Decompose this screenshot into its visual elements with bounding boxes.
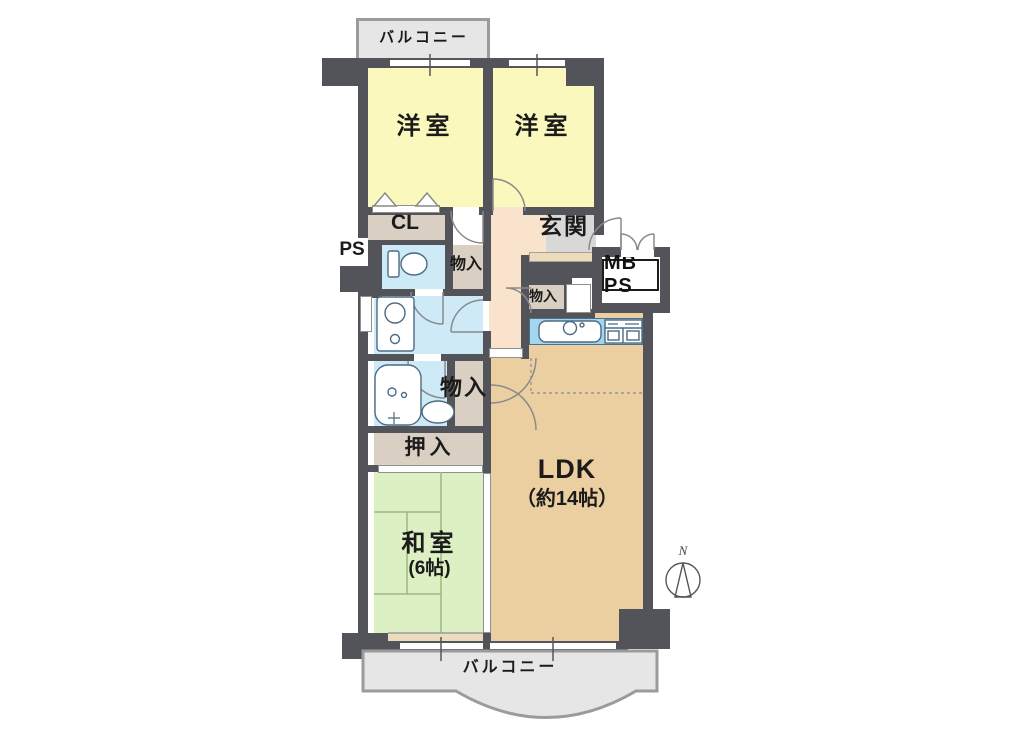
wall-segment bbox=[479, 207, 493, 215]
wall-segment bbox=[366, 426, 485, 433]
entrance-step bbox=[529, 252, 595, 262]
storage-lower-label: 物入 bbox=[432, 376, 496, 400]
storage-top-label: 物入 bbox=[444, 256, 488, 274]
meter-box: MB PS bbox=[602, 259, 659, 291]
storage-mid-label: 物入 bbox=[519, 289, 567, 304]
wall-segment bbox=[616, 641, 628, 651]
engawa-strip bbox=[388, 633, 483, 641]
wall-segment bbox=[340, 266, 366, 292]
sliding-door bbox=[360, 296, 372, 332]
wall-segment bbox=[594, 58, 604, 209]
oshiire-label: 押入 bbox=[374, 436, 485, 459]
closet-label: CL bbox=[368, 211, 442, 234]
wall-segment bbox=[366, 354, 414, 361]
compass-north-label: N bbox=[674, 544, 692, 558]
entrance-label: 玄関 bbox=[529, 214, 599, 239]
wall-segment bbox=[483, 58, 493, 215]
western-room-right-label: 洋室 bbox=[493, 114, 594, 140]
wall-segment bbox=[592, 303, 670, 313]
western-room-left-label: 洋室 bbox=[368, 114, 483, 140]
floor-plan: MB PS bbox=[0, 0, 1024, 743]
pipe-space-label: PS bbox=[336, 240, 368, 261]
wall-segment bbox=[441, 354, 485, 361]
balcony-bottom-label: バルコニー bbox=[420, 659, 600, 677]
balcony-top-label: バルコニー bbox=[358, 30, 490, 47]
mb-door-gap bbox=[621, 247, 654, 257]
compass-icon bbox=[666, 563, 700, 597]
japanese-room-label: 和室 bbox=[374, 531, 485, 557]
wall-segment bbox=[380, 641, 400, 651]
wall-segment bbox=[483, 641, 490, 651]
ldk-label: LDK bbox=[489, 455, 645, 485]
utility-white-box bbox=[566, 284, 591, 313]
wall-segment bbox=[445, 207, 453, 294]
window-opening bbox=[490, 641, 616, 651]
window-opening bbox=[390, 58, 470, 68]
corridor bbox=[489, 215, 523, 348]
kitchen-counter bbox=[529, 318, 643, 345]
washroom bbox=[374, 296, 483, 354]
japanese-room-size-label: (6帖) bbox=[374, 559, 485, 580]
window-opening bbox=[400, 641, 483, 651]
sliding-door bbox=[378, 465, 483, 473]
window-opening bbox=[509, 58, 565, 68]
ldk-size-label: （約14帖） bbox=[489, 488, 645, 510]
toilet-room bbox=[382, 245, 445, 289]
wall-segment bbox=[443, 289, 485, 296]
sliding-door bbox=[489, 348, 523, 358]
wall-segment bbox=[521, 262, 595, 278]
wall-segment bbox=[366, 289, 415, 296]
